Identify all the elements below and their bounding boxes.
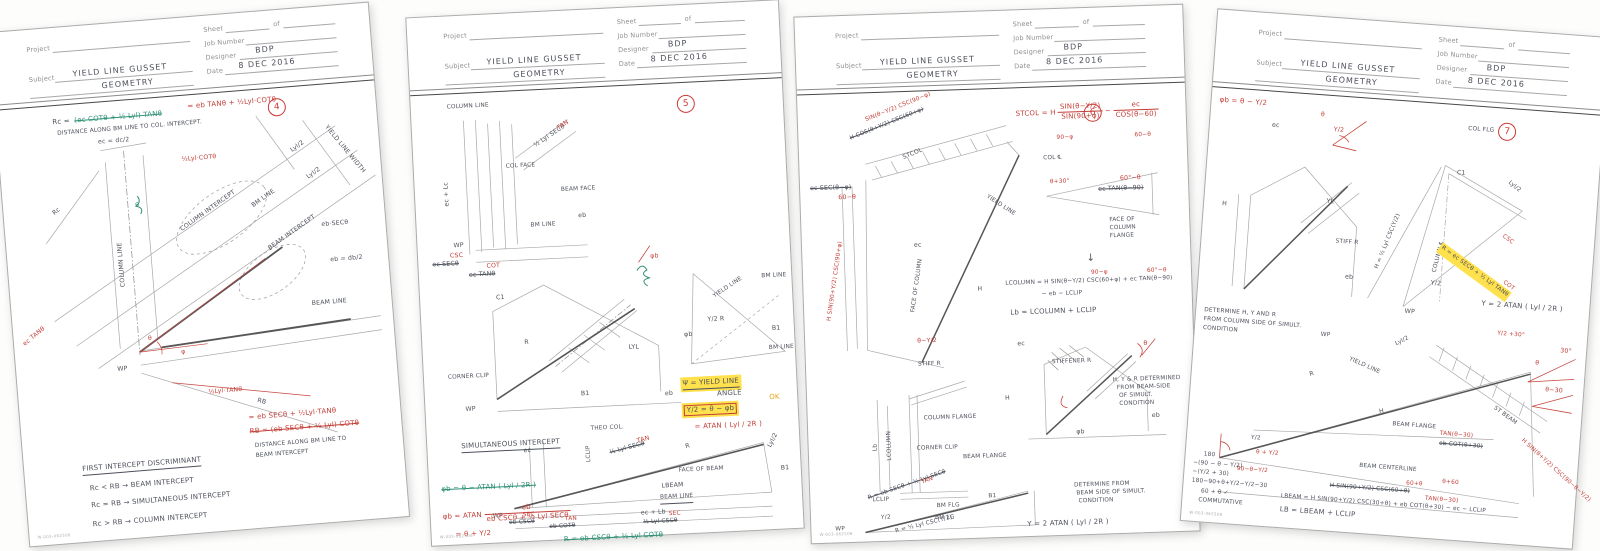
theta-red: θ: [1143, 340, 1147, 348]
lcolumn-fix-1: 90−φ: [1091, 269, 1108, 277]
sheet-content: SIN(θ−Y/2) CSC(90−φ) H COS(θ+Y/2) CSC(60…: [803, 91, 1193, 539]
date-label: Date: [206, 66, 223, 75]
r-dim: R: [685, 442, 691, 451]
y2-label-a: Y/2: [1430, 280, 1441, 289]
of-label: of: [1083, 18, 1090, 26]
lcolumn-dim: LCOLUMN: [886, 431, 895, 461]
col-centerline-label: COL ℄: [1043, 155, 1062, 163]
job-number-label: Job Number: [204, 37, 245, 48]
ec-sec-label: ec SECθ: [432, 260, 459, 269]
sheet-content: COLUMN LINE ec + Lc ½ Lyl SECθ TAN COL F…: [417, 86, 798, 541]
csc-correction: CSC: [450, 252, 464, 261]
designer-label: Designer: [1436, 63, 1467, 73]
designer-value: BDP: [1486, 63, 1506, 73]
sheet-content: Rc = (ec COTθ + ½ Lyl) TANθ = eb TANθ + …: [2, 89, 403, 542]
stiff-label: STIFF R: [1335, 239, 1358, 248]
of-label: of: [684, 14, 691, 22]
lyl-label: LYL: [628, 343, 639, 352]
designer-label: Designer: [205, 51, 236, 61]
fix-60-theta-3: 60°−θ: [1120, 174, 1141, 183]
phib-red-label: φb: [650, 252, 659, 260]
date-value: 8 DEC 2016: [1046, 55, 1104, 66]
ec-tan-label: ec TANθ: [469, 270, 496, 279]
ec-lc-dim: ec + Lc: [442, 182, 451, 207]
beam-line-label: BEAM LINE: [660, 493, 694, 504]
project-label: Project: [1258, 28, 1282, 38]
ec-lb-dim: ec + Lb: [641, 508, 666, 517]
eb-label: eb: [1345, 273, 1354, 282]
sheet-label: Sheet: [1438, 36, 1458, 45]
col-face-label: COL FACE: [506, 162, 536, 171]
designer-value: BDP: [668, 39, 688, 49]
theta-green-mark: θ: [135, 202, 140, 210]
lclip-dim: LCLIP: [585, 445, 593, 462]
c1-label: C1: [496, 294, 505, 302]
theta-y2-red: θ−Y/2: [917, 337, 937, 346]
date-label: Date: [1435, 77, 1452, 86]
c1-label: C1: [1457, 169, 1466, 178]
theta-red-mark: θ: [148, 335, 153, 343]
theta-red-label: θ: [1321, 111, 1326, 119]
h-dim-2: H: [1005, 395, 1010, 403]
wp-label-1: WP: [453, 242, 464, 251]
stiff-plate-label: STIFF R: [918, 361, 941, 369]
sheet-header: Project Subject YIELD LINE GUSSET GEOMET…: [794, 5, 1185, 104]
r-label: R: [524, 339, 529, 347]
y2-label-b: Y/2: [1251, 435, 1261, 443]
corner-clip-label: CORNER CLIP: [917, 444, 958, 453]
y2-red-label: Y/2: [1333, 126, 1344, 135]
lcolumn-formula-2: − eb − LCLIP: [1042, 290, 1083, 299]
calc-sheet-page-4: Project Subject YIELD LINE GUSSET GEOMET…: [0, 2, 410, 548]
bm-flg-label: BM FLG: [937, 502, 960, 510]
y2-r-label: Y/2 R: [707, 315, 724, 324]
wp-label: WP: [117, 365, 128, 374]
calc-sheet-page-6: Project Subject YIELD LINE GUSSET GEOMET…: [793, 4, 1200, 545]
calc-sheet-page-5: Project Subject YIELD LINE GUSSET GEOMET…: [405, 0, 804, 547]
lcolumn-fix-2: 60°−θ: [1147, 267, 1167, 275]
phib-label-2: φb: [684, 331, 693, 339]
angle-theta-60: θ+60: [1442, 479, 1459, 488]
gusset-geometry-sketch: [803, 91, 1193, 539]
fix-90-phi: 90−φ: [1056, 134, 1073, 142]
project-label: Project: [26, 44, 50, 54]
ec-dim-2: ec: [1017, 340, 1025, 348]
h-dim-label: H: [1222, 200, 1227, 208]
ec-tan-label: ec TAN(θ−90): [1098, 184, 1144, 194]
sheet-content: φb = θ − Y/2 θ Y/2 ec H YL STIFF R eb DE…: [1187, 96, 1597, 545]
angle-30: 30°: [1560, 347, 1572, 356]
margin-calc-1: 180: [1203, 451, 1215, 459]
subject-label: Subject: [29, 74, 55, 84]
eb-cot-dim: eb COTθ: [549, 523, 576, 532]
sec-correction-2: SEC: [669, 511, 681, 519]
bm-line-label-3: BM LINE: [769, 344, 795, 353]
ec-dim: ec: [523, 447, 531, 455]
subject-value-2: GEOMETRY: [906, 69, 959, 80]
formula-rc-lhs: Rc =: [52, 117, 70, 127]
note-right-4: CONDITION: [1119, 400, 1154, 409]
cot-correction: COT: [486, 262, 500, 271]
eb-label-2: eb: [665, 390, 674, 398]
job-number-label: Job Number: [1013, 33, 1053, 42]
date-label: Date: [1014, 62, 1031, 71]
wp-label-1: WP: [1404, 308, 1415, 317]
gusset-geometry-sketch: [417, 86, 798, 541]
date-label: Date: [619, 59, 636, 68]
project-label: Project: [443, 31, 467, 40]
eb-dim: eb: [1152, 412, 1160, 420]
phib-atan-lhs: φb = ATAN: [443, 511, 483, 521]
phi-red-mark: φ: [181, 348, 186, 356]
lbeam-dim: LBEAM: [661, 481, 684, 490]
of-label: of: [1508, 41, 1515, 49]
beam-flange-label: BEAM FLANGE: [963, 453, 1007, 462]
y2-label: Y/2: [881, 515, 891, 523]
bm-line-label: BM LINE: [530, 221, 556, 230]
note-bottom-3: CONDITION: [1078, 497, 1113, 506]
designer-value: BDP: [255, 44, 275, 55]
date-value: 8 DEC 2016: [650, 52, 708, 64]
fix-60-theta: 60−θ: [1134, 132, 1151, 140]
face-of-flange-3: FLANGE: [1110, 232, 1135, 240]
calc-sheet-page-7: Project Subject YIELD LINE GUSSET GEOMET…: [1180, 8, 1600, 549]
angle-theta: θ: [1535, 360, 1540, 368]
wp-label-2: WP: [465, 405, 476, 414]
ec-sec-label: ec SEC(θ−φ): [810, 184, 852, 193]
bm-line-label-2: BM LINE: [761, 272, 787, 281]
job-number-label: Job Number: [1437, 50, 1478, 61]
phib-label: φb: [1076, 428, 1085, 436]
designer-value: BDP: [1063, 42, 1083, 52]
sheet-label: Sheet: [617, 17, 637, 26]
sheet-label: Sheet: [1013, 20, 1033, 29]
lb-dim: Lb: [873, 444, 881, 452]
theta-30-red: θ+30°: [1050, 179, 1070, 187]
ec-label: ec: [914, 241, 922, 249]
angle-theta-30: θ−30: [1545, 386, 1563, 395]
fix-60-theta-2: 60−θ: [838, 194, 856, 203]
down-arrow: ↓: [1086, 252, 1095, 265]
theta-plus-y2-red: θ + Y/2: [1256, 449, 1279, 458]
b1-label-c: B1: [781, 464, 790, 472]
job-number-label: Job Number: [617, 30, 658, 40]
designer-label: Designer: [1014, 47, 1045, 56]
yield-line-angle-def-2: ANGLE: [717, 388, 742, 398]
h-dim-label-2: H: [1379, 408, 1385, 417]
b1-label: B1: [988, 493, 996, 501]
h-dim: H: [977, 285, 982, 293]
subject-label: Subject: [1256, 58, 1282, 68]
ok-mark: OK: [769, 393, 780, 403]
b1-label-a: B1: [581, 390, 590, 398]
sheet-label: Sheet: [203, 24, 223, 34]
yl-label: YL: [1326, 198, 1334, 207]
fix-60-theta-bottom: 60+θ: [1406, 480, 1423, 489]
stiffener-label: STIFFENER R: [1052, 358, 1092, 367]
scanned-calc-sheets-canvas: { "form": { "project": "Project", "sheet…: [0, 0, 1600, 551]
subject-label: Subject: [445, 61, 471, 70]
ec-label: ec: [1272, 122, 1280, 131]
project-label: Project: [835, 31, 859, 40]
wp-label-2: WP: [1320, 332, 1330, 340]
subject-label: Subject: [836, 61, 862, 70]
of-label: of: [273, 20, 280, 29]
eb-label-1: eb: [578, 212, 587, 220]
designer-label: Designer: [618, 45, 649, 54]
b1-label-b: B1: [772, 324, 781, 332]
